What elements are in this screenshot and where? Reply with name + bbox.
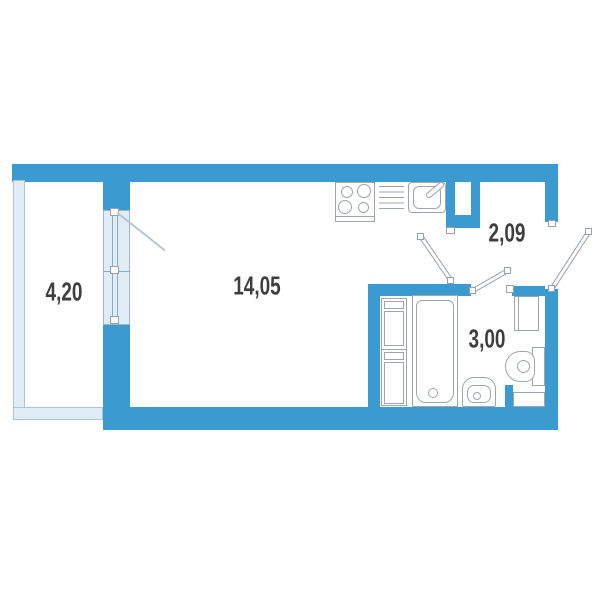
bathroom-door-end-cap [504,267,511,274]
tall-cabinet-drawer-2 [384,352,404,360]
room-door-end-cap [417,233,424,240]
entrance-door-end-cap [585,228,592,235]
washbasin-drain [473,392,481,400]
wall-balcony-partition-lower [103,325,130,430]
bathroom-door-hinge-cap [469,287,476,294]
stove-front-line [336,216,374,217]
wall-balcony-partition-upper [103,182,130,210]
living-room-area-label: 14,05 [233,271,281,302]
stove-burner-top-right [357,184,371,198]
wall-top [12,164,558,182]
room-door-hinge-cap [447,277,454,284]
tall-cabinet-drawer-1 [384,301,404,309]
balcony-wall-bottom [13,407,103,420]
window-joint-bottom [110,316,119,324]
entrance-jamb-marker [548,220,556,227]
hallway-area-label: 2,09 [489,218,526,249]
wall-bathroom-top-right [512,286,545,296]
wall-bottom [103,407,558,430]
toilet-drain [517,360,530,373]
stove-burner-bottom-left [338,200,352,214]
wall-bathroom-left [368,284,380,407]
room-to-hallway-door [419,235,453,282]
balcony-area-label: 4,20 [46,277,83,308]
tall-cabinet-door-1 [384,311,404,346]
balcony-wall-left [13,180,25,420]
entrance-door [550,230,591,290]
room-door-jamb-marker [446,227,455,234]
entrance-door-hinge-cap [548,285,555,292]
bathroom-wall-end-marker [506,285,514,293]
duct-niche-right [471,182,480,215]
drying-rack [379,186,404,213]
stove-burner-top-left [341,186,353,198]
tall-cabinet-door-2 [384,362,404,404]
stove-burner-bottom-right [358,202,369,213]
floor-plan: 4,20 14,05 2,09 3,00 [0,0,600,600]
corner-cabinet-door-line [518,297,519,330]
bathtub-drain [428,388,438,398]
vent-niche [513,392,545,407]
tall-cabinet-divider [381,349,407,350]
bathroom-area-label: 3,00 [469,324,506,355]
window-joint-middle [110,266,119,274]
vent-stub [505,385,513,407]
wall-right-upper [545,164,558,222]
